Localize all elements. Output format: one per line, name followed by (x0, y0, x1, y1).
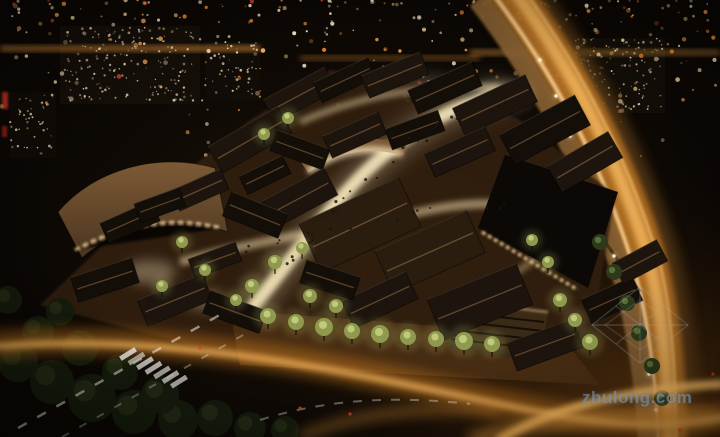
night-aerial-rendering: zhulong.com (0, 0, 720, 437)
vignette (0, 0, 720, 437)
scene-canvas (0, 0, 720, 437)
